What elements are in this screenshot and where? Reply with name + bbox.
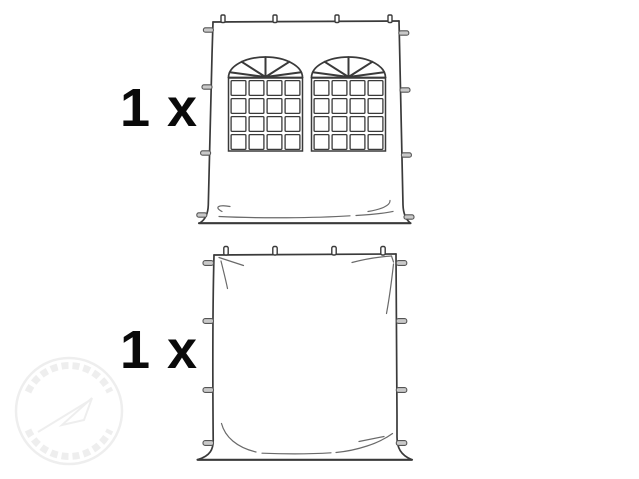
tab xyxy=(396,441,407,446)
product-contents-figure: 1 x 1 x xyxy=(0,0,639,479)
panel-left-edge xyxy=(200,22,213,223)
wrinkle-top-left-2 xyxy=(221,261,228,289)
tab xyxy=(399,31,409,35)
tab xyxy=(203,319,214,324)
tab xyxy=(202,85,212,89)
tab xyxy=(400,88,410,92)
tab xyxy=(203,28,213,32)
arched-window-right xyxy=(312,57,386,151)
tab xyxy=(381,247,385,256)
wrinkle-lines xyxy=(219,256,394,454)
panel-left-edge xyxy=(198,255,214,460)
fold-curl-right xyxy=(368,201,390,212)
wrinkle-top-right-1 xyxy=(352,256,392,263)
wrinkle-bottom-left-1 xyxy=(222,424,257,453)
tab xyxy=(201,151,211,155)
attachment-tabs-right xyxy=(396,261,407,446)
tab xyxy=(203,441,214,446)
wrinkle-top-left-1 xyxy=(219,258,244,266)
hem-line-2 xyxy=(356,211,393,215)
panel-right-edge xyxy=(396,254,412,460)
panel-right-edge xyxy=(399,21,410,223)
illustration-svg xyxy=(0,0,639,479)
tab xyxy=(224,247,228,256)
hem-line-1 xyxy=(219,216,350,218)
tent-sidewall-with-two-arched-windows-icon xyxy=(197,15,414,223)
fold-curl-left xyxy=(218,206,230,212)
tab xyxy=(221,15,225,23)
tent-sidewall-plain-icon xyxy=(198,247,413,460)
arched-window-left xyxy=(229,57,303,151)
wrinkle-top-right-2 xyxy=(392,256,394,262)
tab xyxy=(396,388,407,393)
tab xyxy=(273,15,277,23)
watermark-triangle xyxy=(62,398,92,425)
tab xyxy=(197,213,207,217)
tab xyxy=(332,247,336,256)
tab xyxy=(401,153,411,157)
panel-top-edge xyxy=(214,254,396,255)
quantity-label-bottom: 1 x xyxy=(120,323,198,377)
tab xyxy=(273,247,277,256)
tab xyxy=(396,319,407,324)
tab xyxy=(388,15,392,23)
circular-logo-watermark-icon xyxy=(16,358,122,464)
tab xyxy=(396,261,407,266)
panel-outline xyxy=(198,254,413,460)
wrinkle-bottom-center xyxy=(262,453,331,454)
panel-top-edge xyxy=(213,21,399,22)
hem-fold-lines xyxy=(218,201,393,218)
tab xyxy=(203,261,214,266)
watermark-ring xyxy=(16,358,122,464)
tab xyxy=(404,215,414,219)
watermark-bottom-text-arc xyxy=(28,430,110,456)
watermark-top-text-arc xyxy=(28,366,110,392)
tab xyxy=(335,15,339,23)
tab xyxy=(203,388,214,393)
wrinkle-top-right-3 xyxy=(387,264,394,314)
quantity-label-top: 1 x xyxy=(120,81,198,135)
attachment-tabs-left xyxy=(203,261,214,446)
